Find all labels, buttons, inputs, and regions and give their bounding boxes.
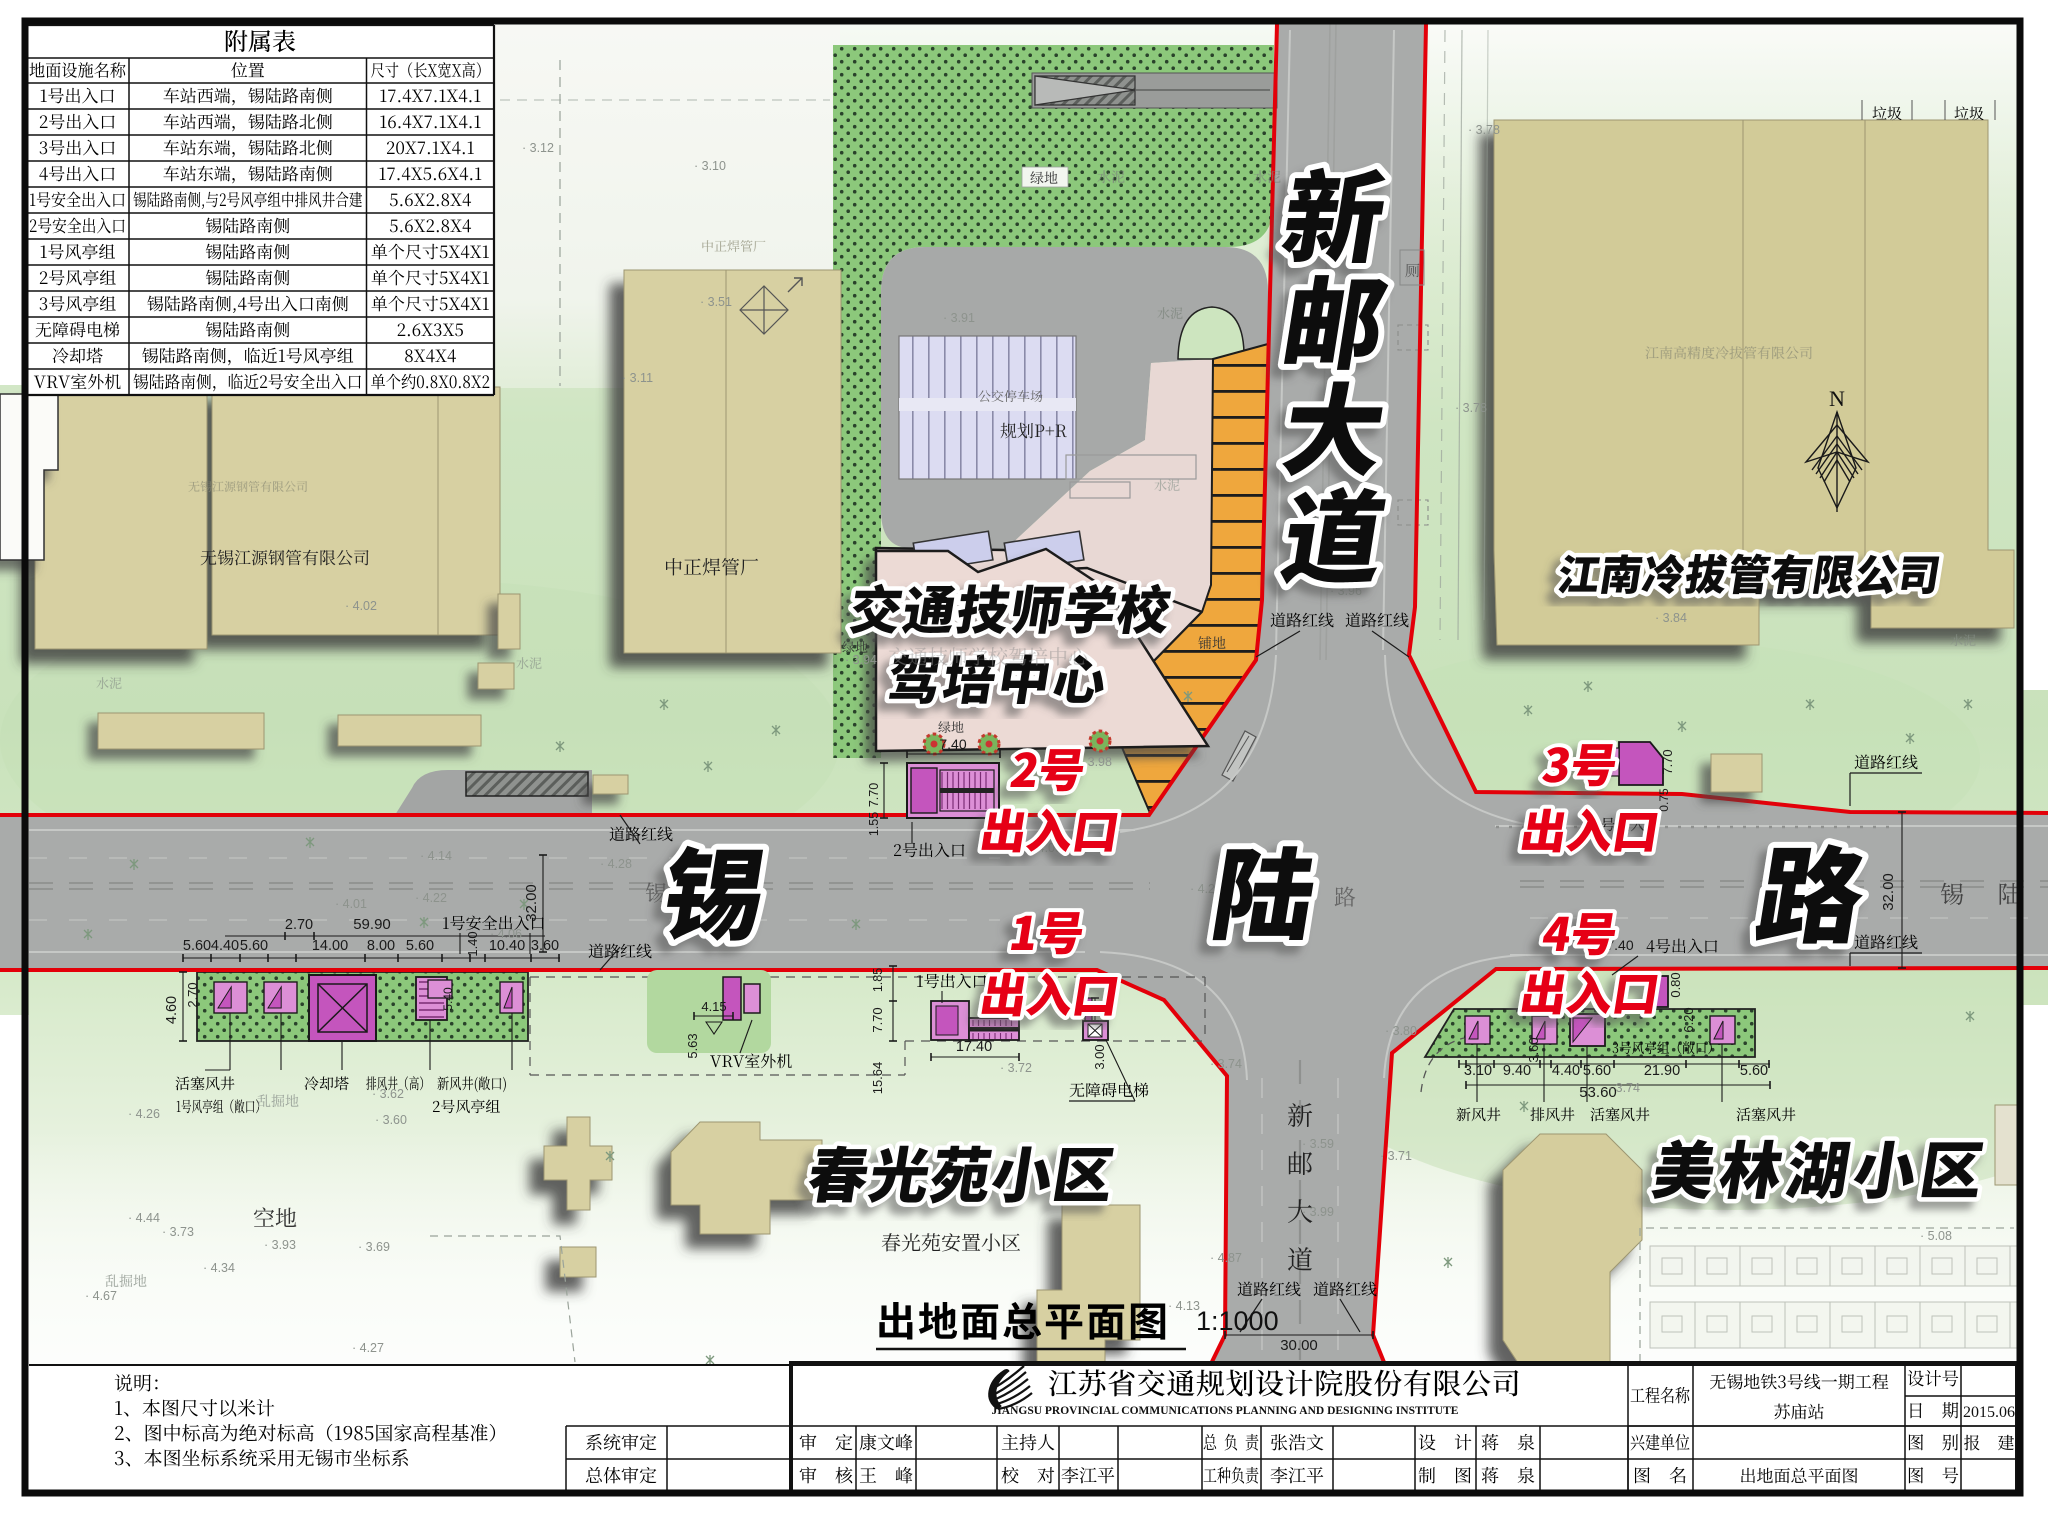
svg-text:17.40: 17.40 xyxy=(956,1039,992,1055)
svg-text:· 3.74: · 3.74 xyxy=(1608,1081,1640,1095)
svg-text:5.40: 5.40 xyxy=(441,987,455,1011)
svg-text:2.70: 2.70 xyxy=(185,982,200,1007)
svg-text:· 3.71: · 3.71 xyxy=(1380,1149,1412,1163)
svg-text:30.00: 30.00 xyxy=(1280,1337,1318,1354)
svg-text:2.70: 2.70 xyxy=(285,917,313,933)
svg-text:7.70: 7.70 xyxy=(867,783,881,807)
svg-text:4.15: 4.15 xyxy=(701,999,726,1014)
svg-text:7.40: 7.40 xyxy=(939,736,966,752)
svg-text:1.85: 1.85 xyxy=(871,968,885,992)
svg-text:· 3.78: · 3.78 xyxy=(1468,123,1500,137)
svg-text:· 3.93: · 3.93 xyxy=(264,1238,296,1252)
svg-text:4.40: 4.40 xyxy=(211,938,239,954)
svg-text:0.75: 0.75 xyxy=(1657,788,1671,812)
svg-text:32.00: 32.00 xyxy=(1880,873,1897,911)
svg-text:· 5.08: · 5.08 xyxy=(1920,1229,1952,1243)
svg-text:· 3.91: · 3.91 xyxy=(943,311,975,325)
svg-text:· 4.67: · 4.67 xyxy=(85,1289,117,1303)
svg-text:32.00: 32.00 xyxy=(523,884,540,922)
svg-text:· 3.60: · 3.60 xyxy=(375,1113,407,1127)
svg-text:· 3.73: · 3.73 xyxy=(162,1225,194,1239)
svg-text:N: N xyxy=(1829,386,1845,411)
svg-text:1.55: 1.55 xyxy=(867,812,881,836)
svg-text:1:1000: 1:1000 xyxy=(1196,1306,1279,1336)
svg-text:· 3.72: · 3.72 xyxy=(1000,1061,1032,1075)
svg-text:7.70: 7.70 xyxy=(870,1007,885,1032)
svg-text:· 4.87: · 4.87 xyxy=(1210,1251,1242,1265)
svg-text:2015.06: 2015.06 xyxy=(1963,1404,2015,1421)
svg-text:· 3.12: · 3.12 xyxy=(522,141,554,155)
svg-text:4.60: 4.60 xyxy=(164,996,180,1024)
svg-text:· 4.02: · 4.02 xyxy=(345,599,377,613)
svg-text:21.90: 21.90 xyxy=(1644,1063,1680,1079)
svg-text:· 3.11: · 3.11 xyxy=(622,371,653,385)
svg-text:· 3.80: · 3.80 xyxy=(1385,1024,1417,1038)
svg-text:· 4.44: · 4.44 xyxy=(128,1211,160,1225)
svg-text:· 4.26: · 4.26 xyxy=(128,1107,160,1121)
svg-text:· 3.78: · 3.78 xyxy=(1455,401,1487,415)
svg-text:JIANGSU PROVINCIAL COMMUNICATI: JIANGSU PROVINCIAL COMMUNICATIONS PLANNI… xyxy=(992,1405,1459,1417)
svg-text:· 4.22: · 4.22 xyxy=(415,891,447,905)
svg-text:5.60: 5.60 xyxy=(406,938,434,954)
svg-text:9.40: 9.40 xyxy=(1503,1063,1531,1079)
svg-text:· 3.69: · 3.69 xyxy=(358,1240,390,1254)
svg-text:· 3.84: · 3.84 xyxy=(1655,611,1687,625)
svg-text:· 4.06: · 4.06 xyxy=(490,927,522,941)
svg-text:· 3.94: · 3.94 xyxy=(845,653,877,667)
svg-text:5.63: 5.63 xyxy=(685,1033,700,1058)
svg-text:· 3.74: · 3.74 xyxy=(1210,1057,1242,1071)
svg-text:· 4.14: · 4.14 xyxy=(420,849,452,863)
svg-text:· 4.34: · 4.34 xyxy=(203,1261,235,1275)
svg-text:· 4.28: · 4.28 xyxy=(600,857,632,871)
svg-text:· 3.10: · 3.10 xyxy=(694,159,726,173)
svg-text:7.70: 7.70 xyxy=(1660,749,1675,774)
svg-text:4.40: 4.40 xyxy=(1552,1063,1580,1079)
svg-text:· 3.51: · 3.51 xyxy=(700,295,732,309)
svg-text:· 3.59: · 3.59 xyxy=(1302,1137,1334,1151)
svg-text:· 4.01: · 4.01 xyxy=(335,897,367,911)
svg-text:15.64: 15.64 xyxy=(870,1062,885,1095)
svg-text:8.00: 8.00 xyxy=(367,938,395,954)
svg-text:· 3.62: · 3.62 xyxy=(372,1087,404,1101)
svg-text:5.60: 5.60 xyxy=(183,938,211,954)
svg-text:5.60: 5.60 xyxy=(1740,1063,1768,1079)
svg-text:3.00: 3.00 xyxy=(1092,1044,1107,1069)
svg-text:3.10: 3.10 xyxy=(1464,1063,1492,1079)
svg-text:14.00: 14.00 xyxy=(312,938,348,954)
svg-text:0.80: 0.80 xyxy=(1668,972,1683,997)
svg-text:6.20: 6.20 xyxy=(1681,1007,1696,1032)
svg-text:3.60: 3.60 xyxy=(1526,1037,1541,1062)
svg-text:59.90: 59.90 xyxy=(353,916,391,933)
svg-text:1.40: 1.40 xyxy=(465,931,480,956)
svg-text:· 4.27: · 4.27 xyxy=(352,1341,384,1355)
svg-text:· 3.99: · 3.99 xyxy=(1302,1205,1334,1219)
svg-text:5.60: 5.60 xyxy=(240,938,268,954)
